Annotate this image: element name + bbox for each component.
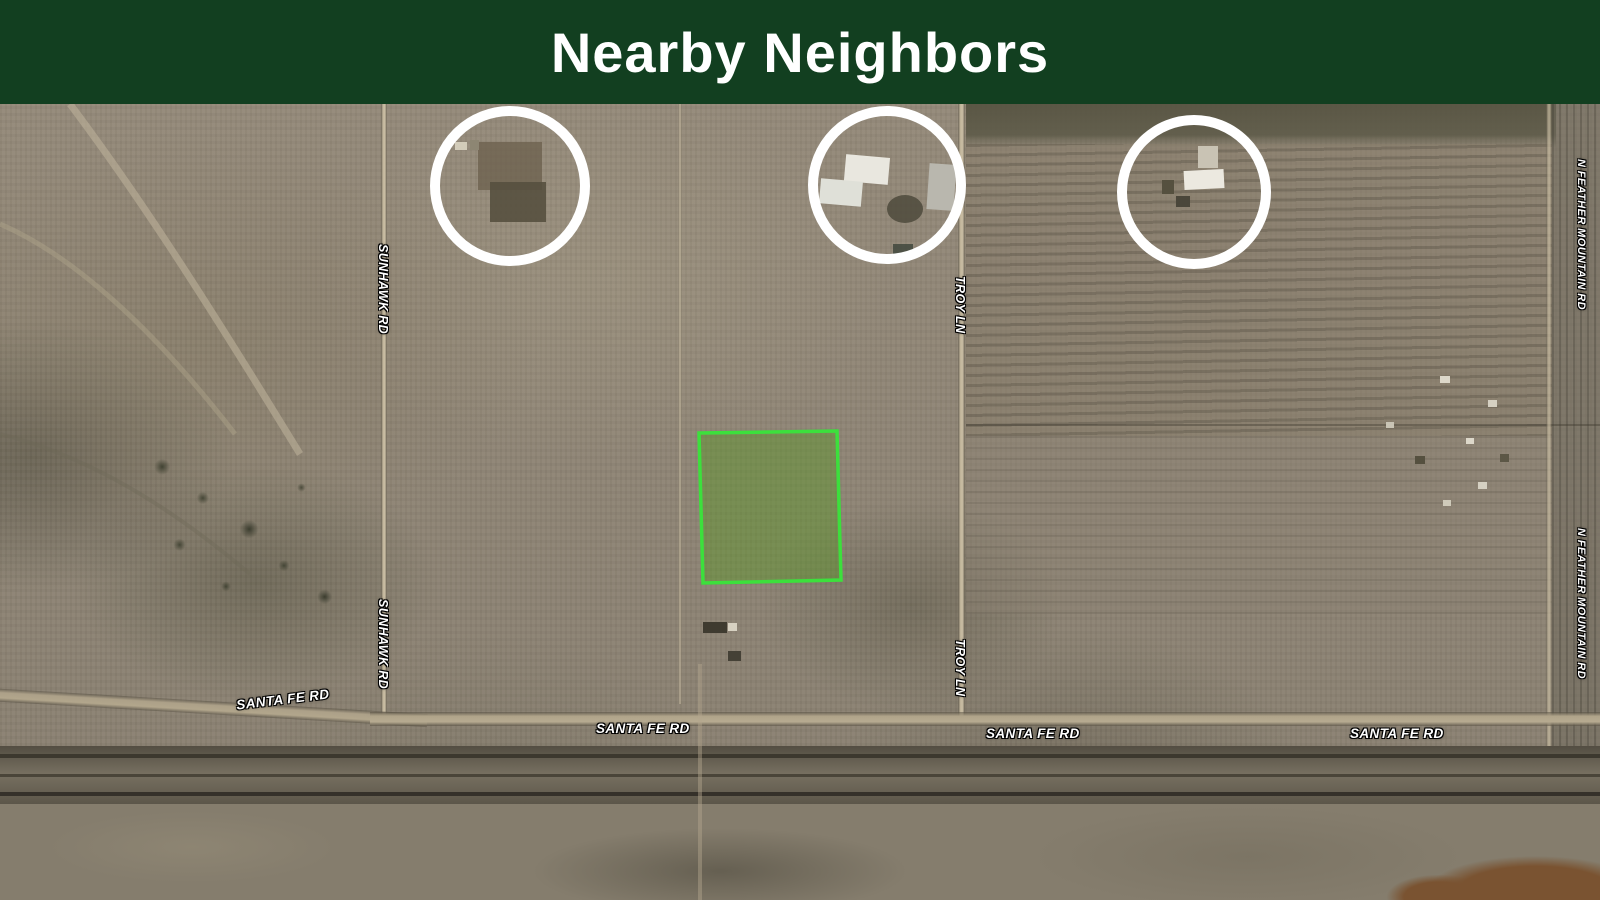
- page-title: Nearby Neighbors: [551, 20, 1049, 85]
- road-label-santa-fe-rd-center: SANTA FE RD: [596, 721, 690, 736]
- annotation-overlay: [0, 104, 1600, 900]
- small-structures: [703, 622, 741, 661]
- satellite-map: SUNHAWK RD SUNHAWK RD TROY LN TROY LN N …: [0, 104, 1600, 900]
- road-label-n-feather-mountain-rd-north: N FEATHER MOUNTAIN RD: [1575, 159, 1587, 310]
- road-label-santa-fe-rd-east-center: SANTA FE RD: [986, 726, 1080, 741]
- dirt-trail: [70, 104, 300, 454]
- nearby-neighbors-slide: Nearby Neighbors: [0, 0, 1600, 900]
- dirt-trail-2: [0, 224, 235, 434]
- road-label-sunhawk-rd-north: SUNHAWK RD: [376, 244, 390, 334]
- road-label-troy-ln-north: TROY LN: [953, 276, 967, 333]
- neighbor-3-buildings: [1162, 146, 1224, 207]
- far-right-farm-cluster: [1386, 376, 1509, 506]
- subject-parcel-outline: [699, 431, 841, 583]
- road-label-n-feather-mountain-rd-south: N FEATHER MOUNTAIN RD: [1575, 528, 1587, 679]
- road-label-sunhawk-rd-south: SUNHAWK RD: [376, 599, 390, 689]
- dirt-trail-3: [0, 434, 250, 574]
- road-label-santa-fe-rd-east: SANTA FE RD: [1350, 726, 1444, 741]
- neighbor-1-buildings: [455, 140, 546, 222]
- road-label-troy-ln-south: TROY LN: [953, 639, 967, 696]
- neighbor-circle-3: [1122, 120, 1266, 264]
- title-banner: Nearby Neighbors: [0, 0, 1600, 104]
